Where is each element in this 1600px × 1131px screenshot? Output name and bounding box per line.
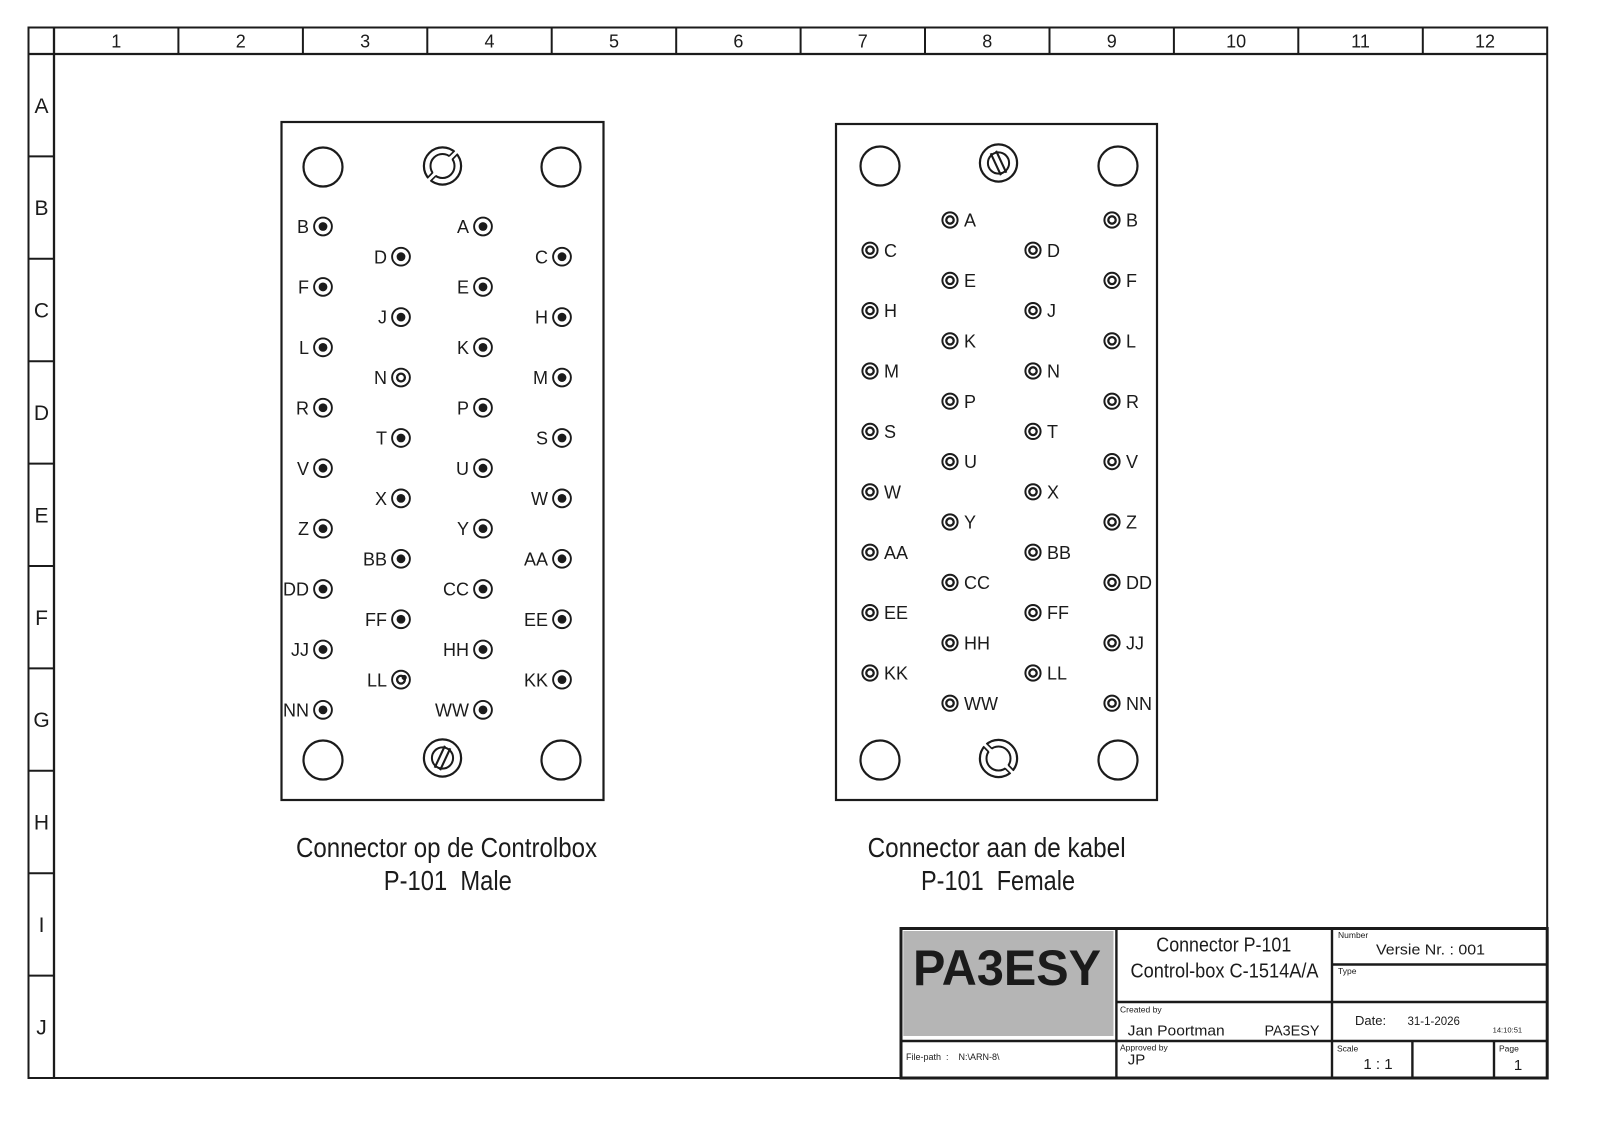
svg-text:J: J — [1047, 301, 1056, 321]
svg-text:HH: HH — [443, 640, 469, 660]
svg-text:CC: CC — [443, 580, 469, 600]
svg-text:PA3ESY: PA3ESY — [913, 940, 1101, 996]
svg-text:W: W — [884, 482, 901, 502]
svg-text:KK: KK — [524, 670, 548, 690]
svg-text:NN: NN — [283, 701, 309, 721]
svg-text:DD: DD — [283, 580, 309, 600]
svg-text:C: C — [884, 241, 897, 261]
svg-text:B: B — [34, 197, 48, 220]
svg-text:FF: FF — [1047, 603, 1069, 623]
svg-text:31-1-2026: 31-1-2026 — [1408, 1016, 1460, 1028]
svg-text:JJ: JJ — [291, 640, 309, 660]
svg-text:T: T — [1047, 422, 1058, 442]
svg-text:LL: LL — [367, 670, 387, 690]
svg-text:D: D — [34, 402, 49, 425]
svg-text:Versie Nr. : 001: Versie Nr. : 001 — [1376, 941, 1485, 958]
svg-text:1 : 1: 1 : 1 — [1363, 1056, 1392, 1073]
svg-text:1: 1 — [1514, 1057, 1522, 1074]
svg-text:AA: AA — [524, 549, 548, 569]
svg-text:8: 8 — [982, 31, 992, 51]
svg-text:M: M — [533, 368, 548, 388]
svg-text:EE: EE — [524, 610, 548, 630]
svg-text:BB: BB — [363, 549, 387, 569]
svg-text:Y: Y — [457, 519, 469, 539]
svg-text:A: A — [34, 95, 48, 118]
svg-text:A: A — [457, 217, 469, 237]
svg-text:Y: Y — [964, 513, 976, 533]
svg-text:11: 11 — [1351, 31, 1370, 51]
svg-text:Jan Poortman: Jan Poortman — [1128, 1023, 1225, 1040]
svg-text:9: 9 — [1107, 31, 1117, 51]
svg-text:H: H — [535, 308, 548, 328]
svg-text:K: K — [964, 331, 976, 351]
svg-text:Page: Page — [1499, 1044, 1519, 1054]
svg-text:E: E — [457, 278, 469, 298]
svg-text:V: V — [297, 459, 309, 479]
svg-text:E: E — [964, 271, 976, 291]
svg-text:1: 1 — [111, 31, 121, 51]
svg-text:EE: EE — [884, 603, 908, 623]
svg-text:KK: KK — [884, 664, 908, 684]
svg-text:B: B — [1126, 211, 1138, 231]
svg-text:6: 6 — [733, 31, 743, 51]
svg-text:14:10:51: 14:10:51 — [1493, 1026, 1523, 1035]
svg-text:JJ: JJ — [1126, 633, 1144, 653]
svg-text:S: S — [884, 422, 896, 442]
svg-text:CC: CC — [964, 573, 990, 593]
svg-text:LL: LL — [1047, 664, 1067, 684]
svg-text:NN: NN — [1126, 694, 1152, 714]
svg-text:I: I — [39, 914, 45, 937]
svg-text:WW: WW — [435, 701, 469, 721]
svg-text:12: 12 — [1475, 31, 1495, 51]
svg-text:Created by: Created by — [1120, 1004, 1162, 1014]
svg-text:S: S — [536, 429, 548, 449]
svg-text:DD: DD — [1126, 573, 1152, 593]
svg-text:T: T — [376, 429, 387, 449]
svg-text:F: F — [298, 278, 309, 298]
svg-text:A: A — [964, 211, 976, 231]
svg-text:Z: Z — [1126, 513, 1137, 533]
svg-text:J: J — [378, 308, 387, 328]
svg-text:AA: AA — [884, 543, 908, 563]
svg-text:PA3ESY: PA3ESY — [1265, 1023, 1320, 1040]
svg-text:Connector P-101: Connector P-101 — [1156, 933, 1291, 956]
svg-text:Connector op de Controlbox: Connector op de Controlbox — [296, 832, 597, 863]
svg-text:U: U — [964, 452, 977, 472]
svg-text:M: M — [884, 362, 899, 382]
svg-text:BB: BB — [1047, 543, 1071, 563]
svg-text:L: L — [1126, 331, 1136, 351]
svg-text:P: P — [964, 392, 976, 412]
svg-text:R: R — [296, 398, 309, 418]
svg-text:K: K — [457, 338, 469, 358]
svg-text:Z: Z — [298, 519, 309, 539]
svg-text:Type: Type — [1338, 966, 1357, 976]
svg-text:Control-box C-1514A/A: Control-box C-1514A/A — [1131, 960, 1319, 983]
svg-text:Date:: Date: — [1355, 1013, 1386, 1028]
svg-text:X: X — [1047, 482, 1059, 502]
svg-text:X: X — [375, 489, 387, 509]
svg-text:R: R — [1126, 392, 1139, 412]
svg-text:C: C — [535, 247, 548, 267]
svg-text:P: P — [457, 398, 469, 418]
svg-text:H: H — [884, 301, 897, 321]
svg-text:U: U — [456, 459, 469, 479]
svg-text:N: N — [374, 368, 387, 388]
svg-text:10: 10 — [1226, 31, 1246, 51]
svg-text:JP: JP — [1128, 1052, 1146, 1069]
svg-text:L: L — [299, 338, 309, 358]
svg-text:C: C — [34, 300, 49, 323]
svg-text:FF: FF — [365, 610, 387, 630]
svg-text:H: H — [34, 812, 49, 835]
svg-text:5: 5 — [609, 31, 619, 51]
svg-text:HH: HH — [964, 633, 990, 653]
svg-text:7: 7 — [858, 31, 868, 51]
svg-text:G: G — [33, 709, 49, 732]
svg-text:Scale: Scale — [1337, 1044, 1359, 1054]
svg-text:B: B — [297, 217, 309, 237]
svg-text:D: D — [1047, 241, 1060, 261]
svg-text:F: F — [1126, 271, 1137, 291]
svg-text:4: 4 — [484, 31, 494, 51]
svg-text:N: N — [1047, 362, 1060, 382]
svg-text:P-101 Male: P-101 Male — [384, 865, 512, 896]
svg-text:V: V — [1126, 452, 1138, 472]
svg-text:Number: Number — [1338, 930, 1368, 940]
svg-text:File-path : N:\ARN-8\: File-path : N:\ARN-8\ — [906, 1052, 1000, 1062]
svg-text:E: E — [34, 504, 48, 527]
svg-text:J: J — [36, 1016, 47, 1039]
svg-text:WW: WW — [964, 694, 998, 714]
svg-text:3: 3 — [360, 31, 370, 51]
svg-text:F: F — [35, 607, 48, 630]
svg-text:Connector aan de kabel: Connector aan de kabel — [868, 832, 1126, 863]
svg-text:P-101 Female: P-101 Female — [921, 865, 1075, 896]
svg-text:W: W — [531, 489, 548, 509]
svg-text:2: 2 — [236, 31, 246, 51]
svg-text:D: D — [374, 247, 387, 267]
